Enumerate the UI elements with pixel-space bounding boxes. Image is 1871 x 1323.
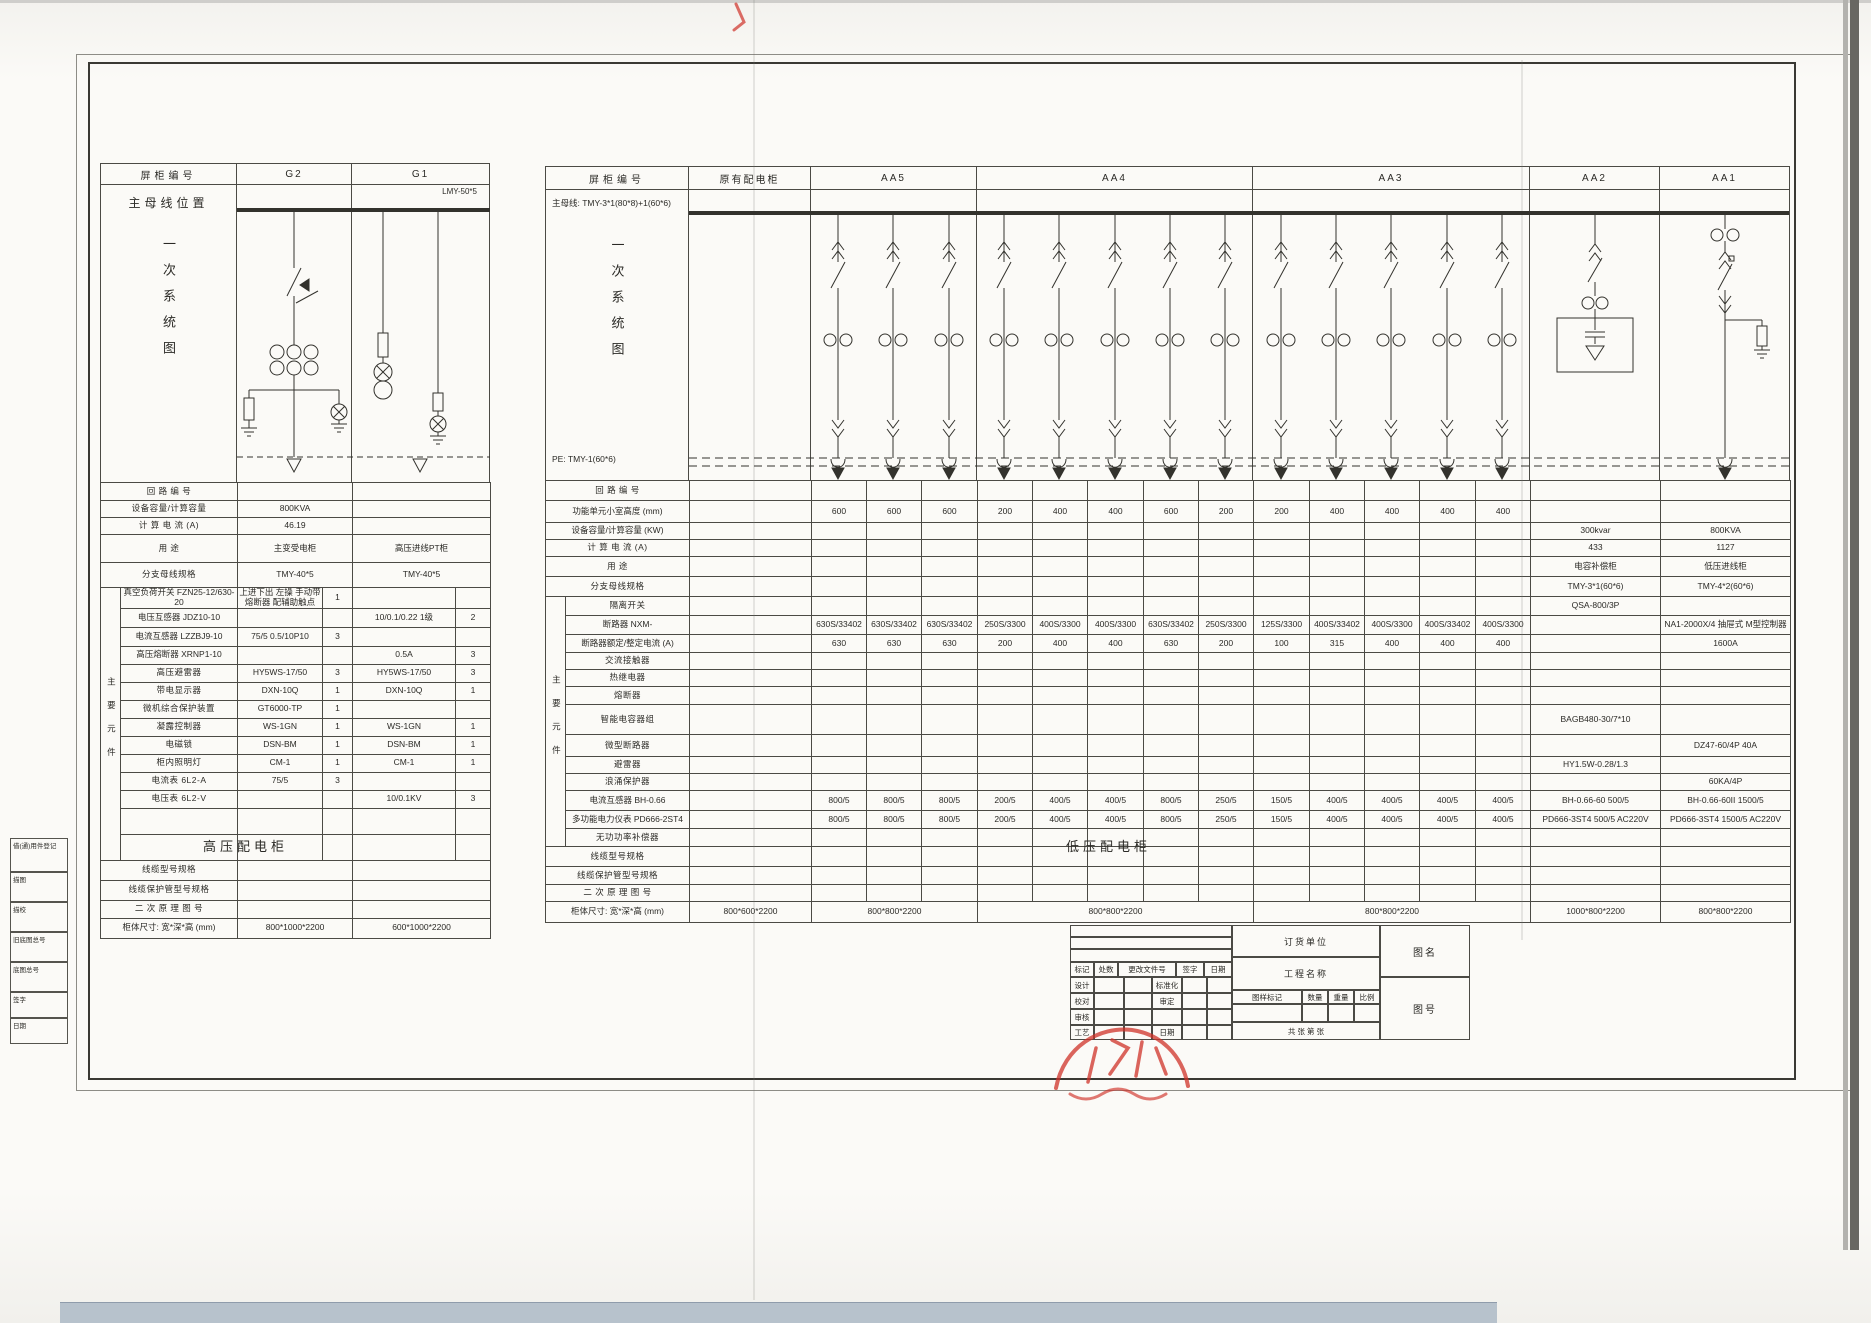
panel-column-header: 屏柜编号 <box>100 163 237 185</box>
row-label: 交流接触器 <box>566 653 690 670</box>
value-cell <box>1420 481 1476 501</box>
g2-value-cell: 46.19 <box>238 518 353 535</box>
value-cell: TMY-4*2(60*6) <box>1661 577 1791 597</box>
value-cell: 400 <box>1365 501 1420 523</box>
g2-value-cell <box>238 483 353 501</box>
row-label: 计 算 电 流 (A) <box>101 518 238 535</box>
g1-value-cell: 600*1000*2200 <box>353 918 491 938</box>
table-row: 主要元件真空负荷开关 FZN25-12/630-20上进下出 左操 手动带熔断器… <box>101 588 491 609</box>
hv-spec-table: 回 路 编 号设备容量/计算容量800KVA计 算 电 流 (A)46.19用 … <box>100 482 491 939</box>
row-label: 电流互感器 BH-0.66 <box>566 791 690 811</box>
value-cell <box>978 687 1033 705</box>
value-cell <box>1199 597 1254 616</box>
value-cell <box>1033 481 1088 501</box>
g1-value-cell <box>353 834 456 860</box>
value-cell: 400 <box>1476 501 1531 523</box>
title-block-cell <box>1207 977 1232 993</box>
value-cell <box>1310 577 1365 597</box>
table-row: 柜体尺寸: 宽*深*高 (mm)800*1000*2200600*1000*22… <box>101 918 491 938</box>
value-cell <box>1199 705 1254 735</box>
value-cell <box>1254 557 1310 577</box>
value-cell <box>690 597 812 616</box>
hv-caption: 高压配电柜 <box>203 836 288 855</box>
value-cell: 1127 <box>1661 540 1791 557</box>
panel-column-header: AA3 <box>1253 166 1530 190</box>
drawing-no-cell: 图号 <box>1380 977 1470 1040</box>
value-cell <box>1531 847 1661 867</box>
value-cell <box>922 847 978 867</box>
value-cell <box>1420 523 1476 540</box>
value-cell <box>1420 885 1476 902</box>
pe-busbar-label: PE: TMY-1(60*6) <box>552 454 616 464</box>
value-cell <box>1088 757 1144 774</box>
row-label: 断路器 NXM- <box>566 616 690 635</box>
value-cell: 400/5 <box>1088 811 1144 829</box>
row-label: 断路器额定/整定电流 (A) <box>566 635 690 653</box>
title-block-cell <box>1070 949 1232 962</box>
panel-column-header: 屏柜编号 <box>545 166 689 190</box>
value-cell <box>1420 577 1476 597</box>
value-cell: 300kvar <box>1531 523 1661 540</box>
g1-value-cell: HY5WS-17/50 <box>353 664 456 682</box>
value-cell <box>1144 481 1199 501</box>
lv-spec-table: 回 路 编 号功能单元小室高度 (mm)60060060020040040060… <box>545 480 1791 923</box>
value-cell <box>1420 540 1476 557</box>
value-cell <box>1420 687 1476 705</box>
value-cell <box>690 757 812 774</box>
value-cell: 400S/3300 <box>1365 616 1420 635</box>
value-cell <box>1033 540 1088 557</box>
g1-qty-cell <box>456 700 491 718</box>
table-row: 电压互感器 JDZ10-1010/0.1/0.22 1级2 <box>101 608 491 627</box>
row-label: 回 路 编 号 <box>101 483 238 501</box>
table-row: 电磁锁DSN-BM1DSN-BM1 <box>101 736 491 754</box>
value-cell <box>1531 635 1661 653</box>
value-cell <box>1661 687 1791 705</box>
g2-qty-cell: 3 <box>323 664 353 682</box>
value-cell <box>1254 705 1310 735</box>
value-cell: DZ47-60/4P 40A <box>1661 735 1791 757</box>
row-label: 电磁锁 <box>121 736 238 754</box>
g1-value-cell <box>353 501 491 518</box>
title-block-cell: 校对 <box>1070 993 1094 1009</box>
title-block-cell: 图样标记 <box>1232 990 1302 1004</box>
scan-edge-top <box>0 0 1871 3</box>
value-cell <box>1033 597 1088 616</box>
value-cell <box>867 847 922 867</box>
table-row: 线缆保护管型号规格 <box>101 880 491 900</box>
value-cell: 200/5 <box>978 791 1033 811</box>
g2-value-cell: GT6000-TP <box>238 700 323 718</box>
value-cell <box>1531 735 1661 757</box>
value-cell: 200 <box>978 501 1033 523</box>
row-label: 柜体尺寸: 宽*深*高 (mm) <box>101 918 238 938</box>
order-unit-cell: 订货单位 <box>1232 925 1380 957</box>
value-cell <box>978 557 1033 577</box>
value-cell <box>812 481 867 501</box>
g1-value-cell <box>353 588 456 609</box>
value-cell: 400/5 <box>1420 791 1476 811</box>
value-cell <box>1661 829 1791 847</box>
hv-g1-diagram-cell: LMY-50*5 <box>352 185 490 482</box>
table-row: 线缆型号规格 <box>546 847 1791 867</box>
value-cell: 250S/3300 <box>1199 616 1254 635</box>
g1-value-cell <box>353 900 491 918</box>
value-cell <box>690 867 812 885</box>
row-label: 用 途 <box>546 557 690 577</box>
value-cell: 400/5 <box>1420 811 1476 829</box>
value-cell <box>1476 829 1531 847</box>
value-cell: 630 <box>1144 635 1199 653</box>
value-cell: 400/5 <box>1088 791 1144 811</box>
value-cell: 400 <box>1033 501 1088 523</box>
title-block-cell: 共 张 第 张 <box>1232 1022 1380 1040</box>
hv-g2-diagram-cell <box>237 185 352 482</box>
value-cell <box>1033 867 1088 885</box>
row-label: 电流表 6L2-A <box>121 772 238 790</box>
value-cell: BH-0.66-60II 1500/5 <box>1661 791 1791 811</box>
value-cell <box>1088 705 1144 735</box>
value-cell: 1600A <box>1661 635 1791 653</box>
value-cell <box>812 653 867 670</box>
g1-qty-cell <box>456 834 491 860</box>
value-cell: 250/5 <box>1199 791 1254 811</box>
value-cell <box>1420 705 1476 735</box>
value-cell <box>922 885 978 902</box>
value-cell <box>690 670 812 687</box>
value-cell: NA1-2000X/4 抽屉式 M型控制器 <box>1661 616 1791 635</box>
value-cell: TMY-3*1(60*6) <box>1531 577 1661 597</box>
value-cell: 800*800*2200 <box>978 902 1254 923</box>
value-cell <box>1033 577 1088 597</box>
g1-qty-cell: 1 <box>456 682 491 700</box>
g2-qty-cell <box>323 808 353 834</box>
value-cell <box>1144 705 1199 735</box>
value-cell <box>812 540 867 557</box>
table-row: 交流接触器 <box>546 653 1791 670</box>
value-cell <box>1661 757 1791 774</box>
value-cell <box>1144 540 1199 557</box>
value-cell <box>1661 670 1791 687</box>
value-cell: 200 <box>1254 501 1310 523</box>
title-block-cell <box>1152 1009 1182 1025</box>
value-cell: 630S/33402 <box>922 616 978 635</box>
value-cell: 400 <box>1476 635 1531 653</box>
g1-value-cell <box>353 860 491 880</box>
value-cell: 600 <box>867 501 922 523</box>
value-cell <box>1088 540 1144 557</box>
g2-value-cell: 上进下出 左操 手动带熔断器 配辅助触点 <box>238 588 323 609</box>
value-cell <box>1199 774 1254 791</box>
value-cell <box>1033 774 1088 791</box>
g2-qty-cell <box>323 608 353 627</box>
title-block-cell: 日期 <box>1204 962 1232 977</box>
row-label: 线缆保护管型号规格 <box>546 867 690 885</box>
table-row: 断路器额定/整定电流 (A)63063063020040040063020010… <box>546 635 1791 653</box>
title-block-cell <box>1094 993 1124 1009</box>
table-row: 功能单元小室高度 (mm)600600600200400400600200200… <box>546 501 1791 523</box>
value-cell <box>1531 481 1661 501</box>
table-row: 高压避雷器HY5WS-17/503HY5WS-17/503 <box>101 664 491 682</box>
value-cell <box>1254 687 1310 705</box>
value-cell: 电容补偿柜 <box>1531 557 1661 577</box>
value-cell <box>922 705 978 735</box>
value-cell <box>1254 523 1310 540</box>
value-cell <box>1365 867 1420 885</box>
title-block-cell <box>1207 993 1232 1009</box>
margin-block: 旧底图总号 <box>10 932 68 962</box>
table-row <box>101 808 491 834</box>
value-cell <box>1365 557 1420 577</box>
value-cell <box>1088 523 1144 540</box>
value-cell <box>1144 757 1199 774</box>
g2-qty-cell: 1 <box>323 736 353 754</box>
value-cell <box>812 670 867 687</box>
value-cell <box>867 829 922 847</box>
value-cell <box>1254 867 1310 885</box>
value-cell <box>978 523 1033 540</box>
g1-qty-cell <box>456 588 491 609</box>
value-cell <box>1476 481 1531 501</box>
hv-diagram-title: 一次系统图 <box>159 237 178 367</box>
table-row: 二 次 原 理 图 号 <box>101 900 491 918</box>
g1-value-cell: 10/0.1KV <box>353 790 456 808</box>
value-cell: 800/5 <box>812 791 867 811</box>
value-cell <box>1144 829 1199 847</box>
title-block-cell <box>1094 977 1124 993</box>
value-cell: 800/5 <box>867 811 922 829</box>
value-cell <box>1033 557 1088 577</box>
hv-panel-table: 屏柜编号G2G1 主母线位置 一次系统图 LMY-50*5 回 路 编 号设备容… <box>100 163 490 939</box>
g1-qty-cell: 2 <box>456 608 491 627</box>
value-cell <box>1310 557 1365 577</box>
value-cell <box>1199 829 1254 847</box>
value-cell: 600 <box>812 501 867 523</box>
value-cell <box>922 687 978 705</box>
row-label: 带电显示器 <box>121 682 238 700</box>
panel-column-header: G1 <box>352 163 490 185</box>
value-cell <box>922 757 978 774</box>
value-cell: 400S/3300 <box>1476 616 1531 635</box>
value-cell <box>1310 687 1365 705</box>
value-cell <box>1365 653 1420 670</box>
value-cell <box>1661 653 1791 670</box>
table-row: 智能电容器组BAGB480-30/7*10 <box>546 705 1791 735</box>
row-label: 线缆型号规格 <box>101 860 238 880</box>
value-cell: 800/5 <box>922 811 978 829</box>
g2-value-cell: TMY-40*5 <box>238 563 353 588</box>
value-cell <box>1310 885 1365 902</box>
value-cell <box>1310 735 1365 757</box>
value-cell <box>1531 616 1661 635</box>
row-label: 计 算 电 流 (A) <box>546 540 690 557</box>
value-cell <box>922 867 978 885</box>
row-label: 电流互感器 LZZBJ9-10 <box>121 627 238 646</box>
value-cell <box>1310 540 1365 557</box>
value-cell: 400/5 <box>1033 791 1088 811</box>
row-label: 柜内照明灯 <box>121 754 238 772</box>
g1-qty-cell <box>456 627 491 646</box>
value-cell <box>1199 885 1254 902</box>
table-row: 回 路 编 号 <box>101 483 491 501</box>
value-cell <box>1254 885 1310 902</box>
value-cell: 800*600*2200 <box>690 902 812 923</box>
title-block: 标记处数更改文件号签字日期设计标准化校对审定审核工艺日期订货单位工程名称图样标记… <box>1070 925 1470 1040</box>
row-label: 设备容量/计算容量 (KW) <box>546 523 690 540</box>
value-cell: 400/5 <box>1476 791 1531 811</box>
value-cell <box>1254 757 1310 774</box>
value-cell <box>1531 653 1661 670</box>
table-row: 凝露控制器WS-1GN1WS-1GN1 <box>101 718 491 736</box>
table-row: 微机综合保护装置GT6000-TP1 <box>101 700 491 718</box>
value-cell <box>690 811 812 829</box>
value-cell <box>922 577 978 597</box>
panel-column-header: AA2 <box>1530 166 1660 190</box>
margin-block: 签字 <box>10 992 68 1018</box>
table-row: 熔断器 <box>546 687 1791 705</box>
title-block-cell: 比例 <box>1354 990 1380 1004</box>
row-label: 柜体尺寸: 宽*深*高 (mm) <box>546 902 690 923</box>
row-label: 多功能电力仪表 PD666-2ST4 <box>566 811 690 829</box>
value-cell <box>1254 735 1310 757</box>
value-cell <box>1088 653 1144 670</box>
title-block-cell <box>1070 925 1232 937</box>
value-cell: 150/5 <box>1254 791 1310 811</box>
value-cell <box>690 540 812 557</box>
component-group-label: 主要元件 <box>101 588 121 861</box>
table-row: 柜内照明灯CM-11CM-11 <box>101 754 491 772</box>
value-cell: 400S/3300 <box>1088 616 1144 635</box>
value-cell <box>1661 867 1791 885</box>
title-block-cell <box>1124 1025 1152 1040</box>
margin-block: 底图总号 <box>10 962 68 992</box>
value-cell <box>812 867 867 885</box>
title-block-cell: 工艺 <box>1070 1025 1094 1040</box>
g1-value-cell: WS-1GN <box>353 718 456 736</box>
g2-value-cell <box>238 880 353 900</box>
value-cell <box>690 557 812 577</box>
value-cell <box>1661 705 1791 735</box>
table-row: 柜体尺寸: 宽*深*高 (mm)800*600*2200800*800*2200… <box>546 902 1791 923</box>
value-cell <box>1531 670 1661 687</box>
value-cell: 200 <box>1199 635 1254 653</box>
value-cell <box>1531 774 1661 791</box>
value-cell <box>1310 847 1365 867</box>
g2-qty-cell <box>323 834 353 860</box>
value-cell <box>1033 523 1088 540</box>
value-cell <box>1420 670 1476 687</box>
g1-value-cell: DSN-BM <box>353 736 456 754</box>
value-cell <box>1365 757 1420 774</box>
value-cell: 200/5 <box>978 811 1033 829</box>
value-cell <box>978 597 1033 616</box>
value-cell <box>690 635 812 653</box>
value-cell <box>1420 774 1476 791</box>
value-cell <box>1661 481 1791 501</box>
lv-panel-table: 屏柜编号原有配电柜AA5AA4AA3AA2AA1 主母线: TMY-3*1(80… <box>545 166 1790 923</box>
g1-qty-cell: 1 <box>456 718 491 736</box>
value-cell <box>978 867 1033 885</box>
value-cell <box>1033 757 1088 774</box>
value-cell: 800/5 <box>922 791 978 811</box>
value-cell <box>867 705 922 735</box>
value-cell <box>1254 540 1310 557</box>
value-cell <box>1310 670 1365 687</box>
row-label: 二 次 原 理 图 号 <box>101 900 238 918</box>
value-cell <box>812 687 867 705</box>
value-cell <box>922 540 978 557</box>
value-cell <box>1420 829 1476 847</box>
value-cell <box>1476 687 1531 705</box>
value-cell <box>1420 847 1476 867</box>
table-row: 微型断路器DZ47-60/4P 40A <box>546 735 1791 757</box>
value-cell <box>867 867 922 885</box>
value-cell <box>978 847 1033 867</box>
g2-qty-cell <box>323 790 353 808</box>
row-label: 线缆型号规格 <box>546 847 690 867</box>
value-cell <box>867 757 922 774</box>
table-row: 设备容量/计算容量 (KW)300kvar800KVA <box>546 523 1791 540</box>
value-cell <box>1531 687 1661 705</box>
g1-value-cell <box>353 880 491 900</box>
value-cell <box>1199 523 1254 540</box>
value-cell <box>1420 757 1476 774</box>
value-cell: 433 <box>1531 540 1661 557</box>
value-cell: 800*800*2200 <box>1254 902 1531 923</box>
value-cell: 400/5 <box>1033 811 1088 829</box>
value-cell <box>1476 540 1531 557</box>
row-label: 避雷器 <box>566 757 690 774</box>
value-cell <box>1144 557 1199 577</box>
title-block-cell <box>1070 937 1232 949</box>
value-cell <box>1144 597 1199 616</box>
value-cell <box>1088 687 1144 705</box>
g2-value-cell <box>238 808 323 834</box>
g1-value-cell: 0.5A <box>353 646 456 664</box>
g2-value-cell: 800*1000*2200 <box>238 918 353 938</box>
row-label: 真空负荷开关 FZN25-12/630-20 <box>121 588 238 609</box>
title-block-cell <box>1328 1004 1354 1022</box>
value-cell <box>1531 867 1661 885</box>
table-row: 电流互感器 BH-0.66800/5800/5800/5200/5400/540… <box>546 791 1791 811</box>
value-cell: 250S/3300 <box>978 616 1033 635</box>
panel-column-header: AA5 <box>811 166 977 190</box>
value-cell <box>690 523 812 540</box>
g1-qty-cell: 3 <box>456 664 491 682</box>
row-label <box>121 808 238 834</box>
value-cell <box>812 774 867 791</box>
table-row: 用 途电容补偿柜低压进线柜 <box>546 557 1791 577</box>
g2-value-cell: DSN-BM <box>238 736 323 754</box>
g2-qty-cell: 1 <box>323 588 353 609</box>
value-cell: 250/5 <box>1199 811 1254 829</box>
value-cell <box>1199 735 1254 757</box>
row-label: 高压熔断器 XRNP1-10 <box>121 646 238 664</box>
title-block-cell <box>1124 977 1152 993</box>
g2-qty-cell: 3 <box>323 627 353 646</box>
value-cell: 600 <box>922 501 978 523</box>
value-cell <box>1420 867 1476 885</box>
value-cell: 200 <box>1199 501 1254 523</box>
value-cell <box>1310 481 1365 501</box>
value-cell: 400/5 <box>1365 811 1420 829</box>
value-cell <box>978 653 1033 670</box>
g1-qty-cell: 1 <box>456 754 491 772</box>
value-cell <box>812 847 867 867</box>
title-block-cell <box>1232 1004 1302 1022</box>
value-cell: QSA-800/3P <box>1531 597 1661 616</box>
table-row: 断路器 NXM-630S/33402630S/33402630S/3340225… <box>546 616 1791 635</box>
